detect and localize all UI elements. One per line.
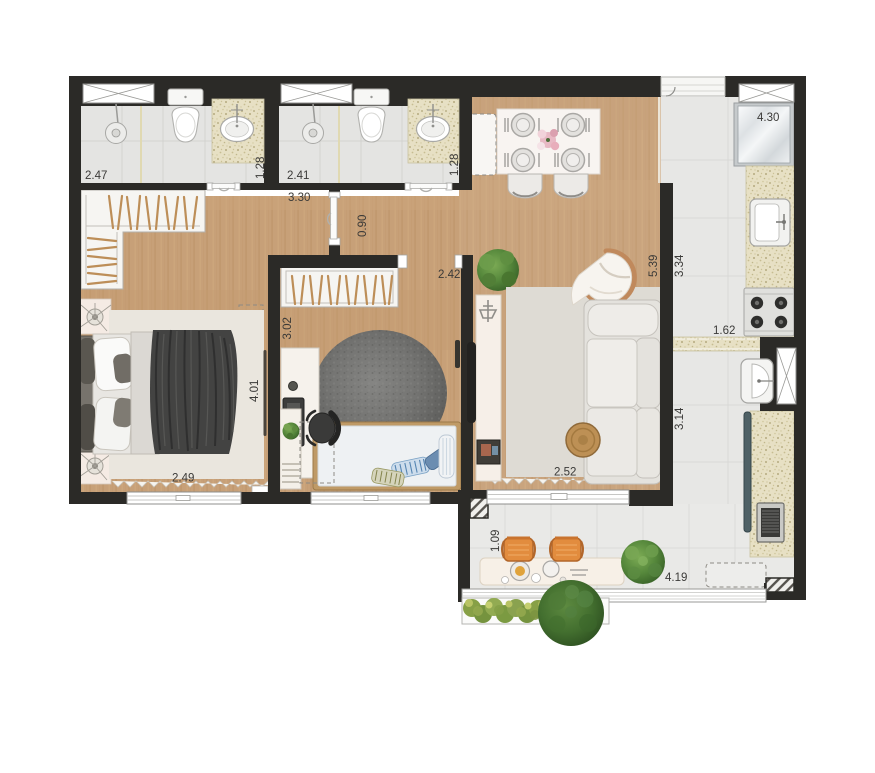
svg-text:3.14: 3.14 [674,407,686,430]
svg-text:4.30: 4.30 [757,112,779,124]
svg-text:2.52: 2.52 [554,467,576,479]
svg-text:3.34: 3.34 [674,254,686,277]
svg-text:2.41: 2.41 [287,170,309,182]
svg-text:1.28: 1.28 [255,157,267,179]
svg-text:3.30: 3.30 [288,192,310,204]
svg-text:1.28: 1.28 [449,154,461,176]
svg-text:2.47: 2.47 [85,170,107,182]
svg-text:2.49: 2.49 [172,473,194,485]
svg-text:1.09: 1.09 [490,530,502,552]
svg-text:3.02: 3.02 [282,317,294,339]
svg-text:5.39: 5.39 [648,255,660,277]
svg-text:2.42: 2.42 [438,269,460,281]
svg-text:4.19: 4.19 [665,572,687,584]
svg-text:0.90: 0.90 [357,215,369,237]
svg-text:4.01: 4.01 [249,380,261,402]
svg-text:1.62: 1.62 [713,325,735,337]
